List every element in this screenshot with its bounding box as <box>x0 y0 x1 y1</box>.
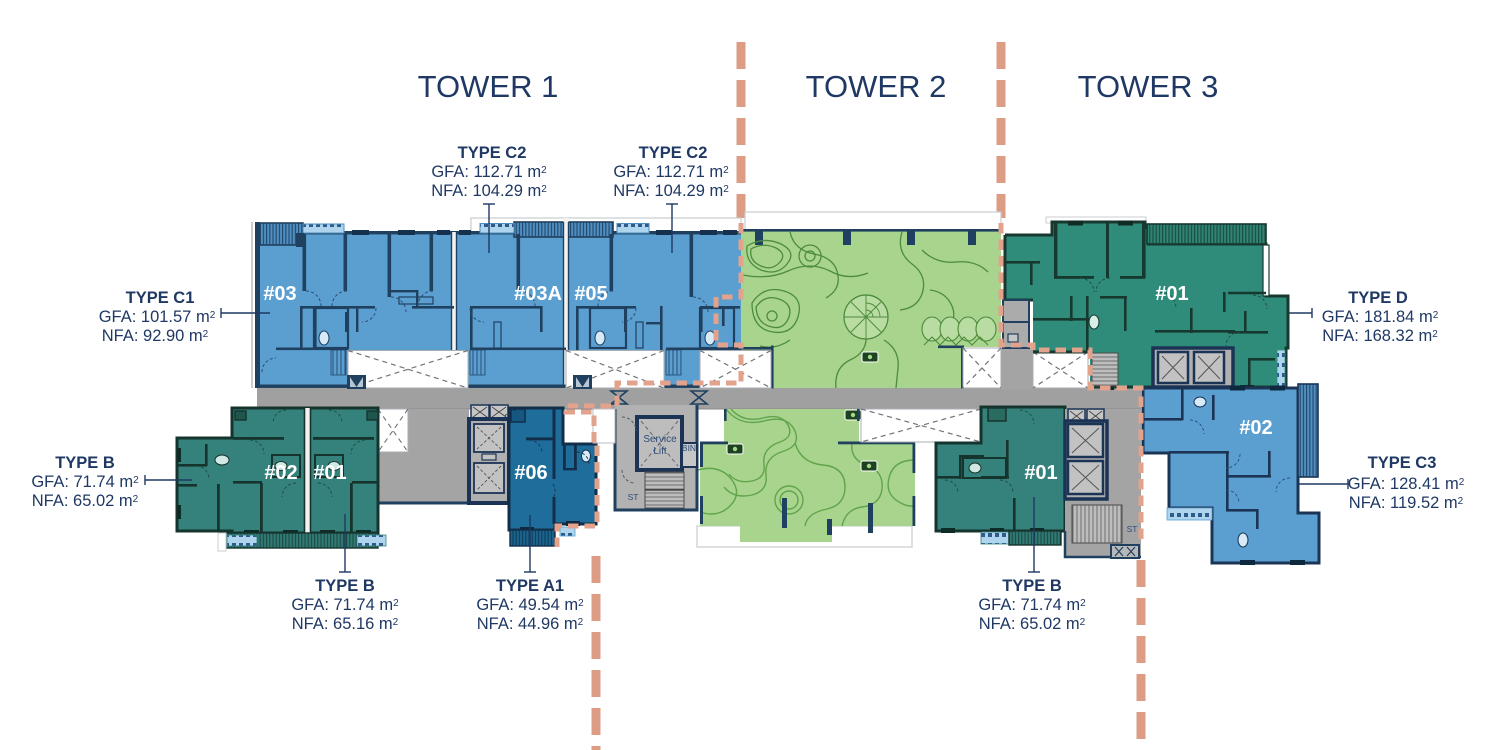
svg-text:TYPE D: TYPE D <box>1348 289 1408 307</box>
svg-text:NFA: 65.02 m2: NFA: 65.02 m2 <box>32 492 139 510</box>
svg-text:Lift: Lift <box>653 446 667 457</box>
svg-text:#03A: #03A <box>514 283 562 305</box>
svg-text:TYPE C2: TYPE C2 <box>639 144 708 162</box>
svg-text:#06: #06 <box>514 462 547 484</box>
svg-text:Service: Service <box>643 434 677 445</box>
svg-text:ST: ST <box>1127 524 1138 534</box>
svg-text:TYPE B: TYPE B <box>1002 577 1062 595</box>
svg-text:NFA: 65.16 m2: NFA: 65.16 m2 <box>292 615 399 633</box>
svg-text:NFA: 44.96 m2: NFA: 44.96 m2 <box>477 615 584 633</box>
svg-text:GFA: 49.54 m2: GFA: 49.54 m2 <box>476 596 584 614</box>
svg-text:TYPE B: TYPE B <box>55 454 115 472</box>
svg-text:TYPE C3: TYPE C3 <box>1368 454 1437 472</box>
svg-text:NFA: 92.90 m2: NFA: 92.90 m2 <box>102 327 209 345</box>
svg-text:NFA: 104.29 m2: NFA: 104.29 m2 <box>613 182 729 200</box>
svg-text:#01: #01 <box>1024 462 1057 484</box>
svg-text:GFA: 101.57 m2: GFA: 101.57 m2 <box>99 308 216 326</box>
svg-text:TYPE B: TYPE B <box>315 577 375 595</box>
svg-text:ST: ST <box>628 492 639 502</box>
svg-text:GFA: 71.74 m2: GFA: 71.74 m2 <box>291 596 399 614</box>
svg-text:TYPE C1: TYPE C1 <box>126 289 195 307</box>
svg-text:#02: #02 <box>264 462 297 484</box>
svg-text:GFA: 128.41 m2: GFA: 128.41 m2 <box>1348 475 1465 493</box>
svg-text:TOWER 2: TOWER 2 <box>806 69 947 104</box>
svg-text:BIN: BIN <box>682 443 696 453</box>
svg-text:NFA: 168.32 m2: NFA: 168.32 m2 <box>1322 327 1438 345</box>
svg-text:#01: #01 <box>313 462 346 484</box>
svg-text:GFA: 71.74 m2: GFA: 71.74 m2 <box>978 596 1086 614</box>
svg-text:TYPE C2: TYPE C2 <box>458 144 527 162</box>
svg-text:GFA: 71.74 m2: GFA: 71.74 m2 <box>31 473 139 491</box>
svg-text:TOWER 1: TOWER 1 <box>418 69 559 104</box>
svg-text:GFA: 181.84 m2: GFA: 181.84 m2 <box>1322 308 1439 326</box>
svg-text:NFA: 65.02 m2: NFA: 65.02 m2 <box>979 615 1086 633</box>
svg-text:NFA: 104.29 m2: NFA: 104.29 m2 <box>431 182 547 200</box>
svg-text:#03: #03 <box>263 283 296 305</box>
svg-text:TYPE A1: TYPE A1 <box>496 577 564 595</box>
svg-text:#02: #02 <box>1239 417 1272 439</box>
svg-text:NFA: 119.52 m2: NFA: 119.52 m2 <box>1349 494 1464 512</box>
svg-text:GFA: 112.71 m2: GFA: 112.71 m2 <box>431 163 547 181</box>
svg-text:GFA: 112.71 m2: GFA: 112.71 m2 <box>613 163 729 181</box>
svg-text:TOWER 3: TOWER 3 <box>1078 69 1219 104</box>
svg-text:#05: #05 <box>574 283 607 305</box>
svg-text:#01: #01 <box>1155 283 1188 305</box>
